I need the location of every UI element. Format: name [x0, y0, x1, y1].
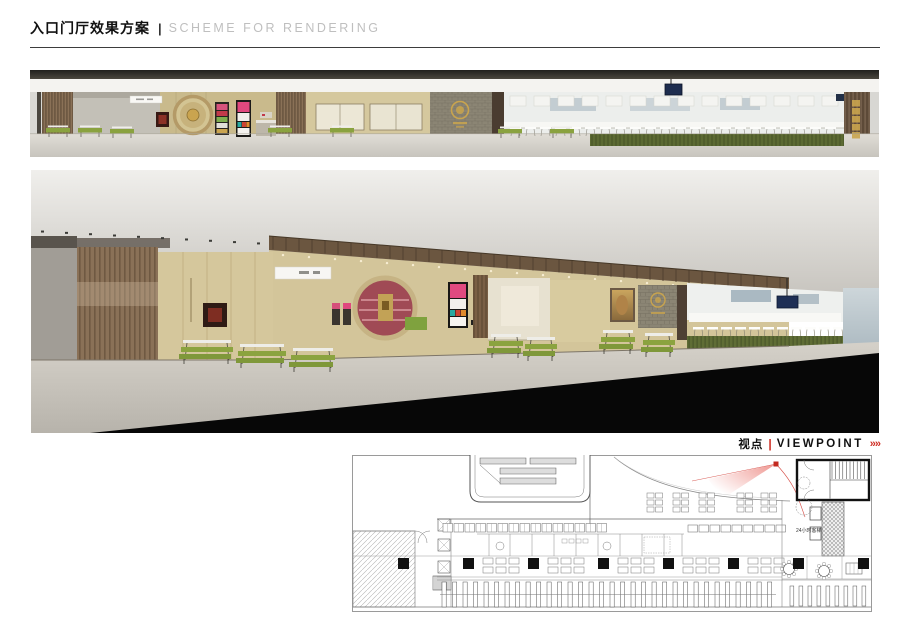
title-separator: |	[158, 21, 162, 36]
page-title-en: SCHEME FOR RENDERING	[169, 21, 381, 35]
viewpoint-arrows-icon: »»	[870, 438, 880, 450]
viewpoint-separator: |	[768, 437, 771, 451]
elevation-rendering-image	[30, 70, 879, 157]
header-rule	[30, 47, 880, 48]
page-header: 入口门厅效果方案 | SCHEME FOR RENDERING	[30, 16, 880, 40]
page-title-cn: 入口门厅效果方案	[30, 18, 150, 38]
floor-plan-drawing: 24小时客梯	[352, 455, 872, 612]
viewpoint-label: 视点 | VIEWPOINT »»	[520, 436, 880, 452]
perspective-rendering-image	[31, 170, 879, 433]
viewpoint-label-en: VIEWPOINT	[777, 438, 864, 450]
presentation-page: 入口门厅效果方案 | SCHEME FOR RENDERING	[0, 0, 900, 636]
elevator-label: 24小时客梯	[796, 527, 822, 534]
viewpoint-label-cn: 视点	[738, 436, 763, 452]
